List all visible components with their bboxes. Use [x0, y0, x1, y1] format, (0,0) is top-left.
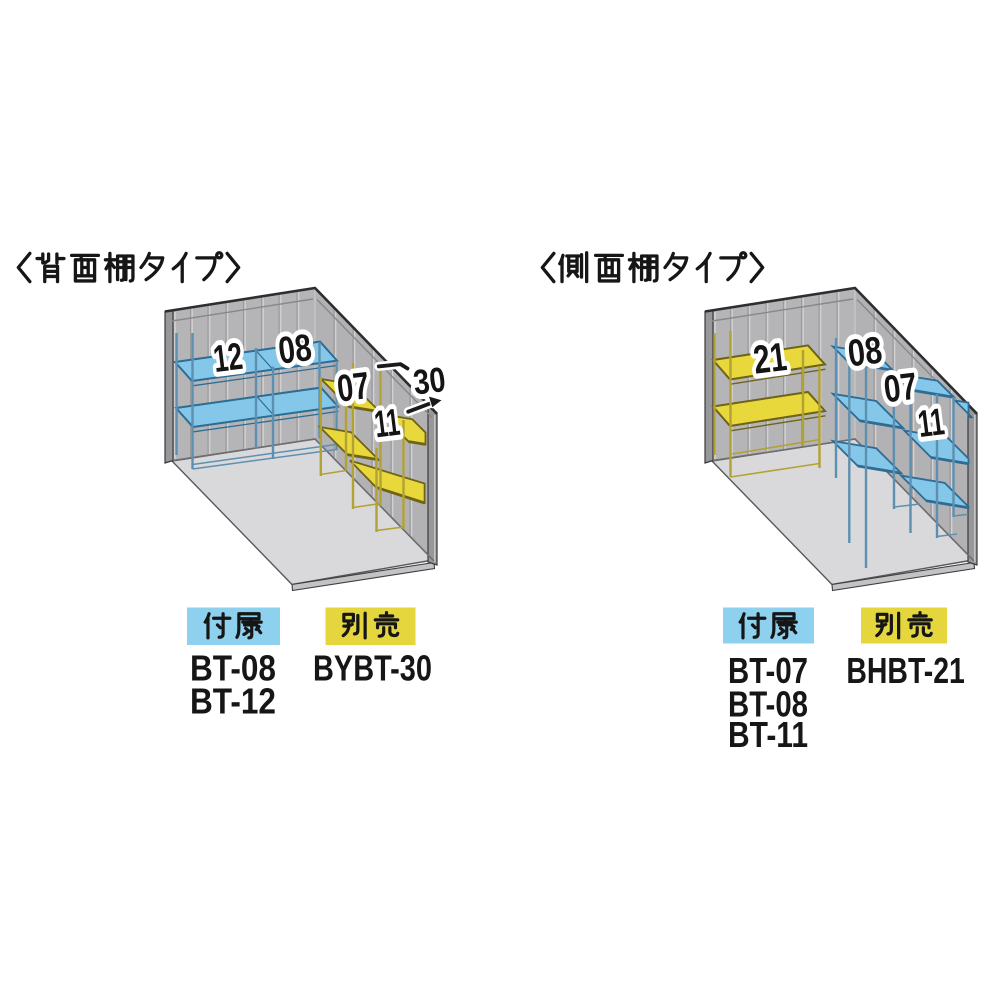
- svg-text:21: 21: [751, 335, 789, 383]
- svg-text:11: 11: [372, 402, 402, 447]
- svg-text:BT-12: BT-12: [190, 681, 276, 722]
- svg-text:08: 08: [276, 327, 314, 373]
- svg-text:12: 12: [211, 336, 245, 381]
- svg-text:BHBT-21: BHBT-21: [846, 650, 964, 691]
- svg-text:11: 11: [916, 401, 947, 446]
- svg-text:08: 08: [846, 330, 885, 376]
- svg-text:BYBT-30: BYBT-30: [313, 648, 432, 689]
- svg-text:BT-11: BT-11: [728, 714, 808, 755]
- svg-text:07: 07: [882, 366, 920, 412]
- svg-text:07: 07: [335, 365, 372, 411]
